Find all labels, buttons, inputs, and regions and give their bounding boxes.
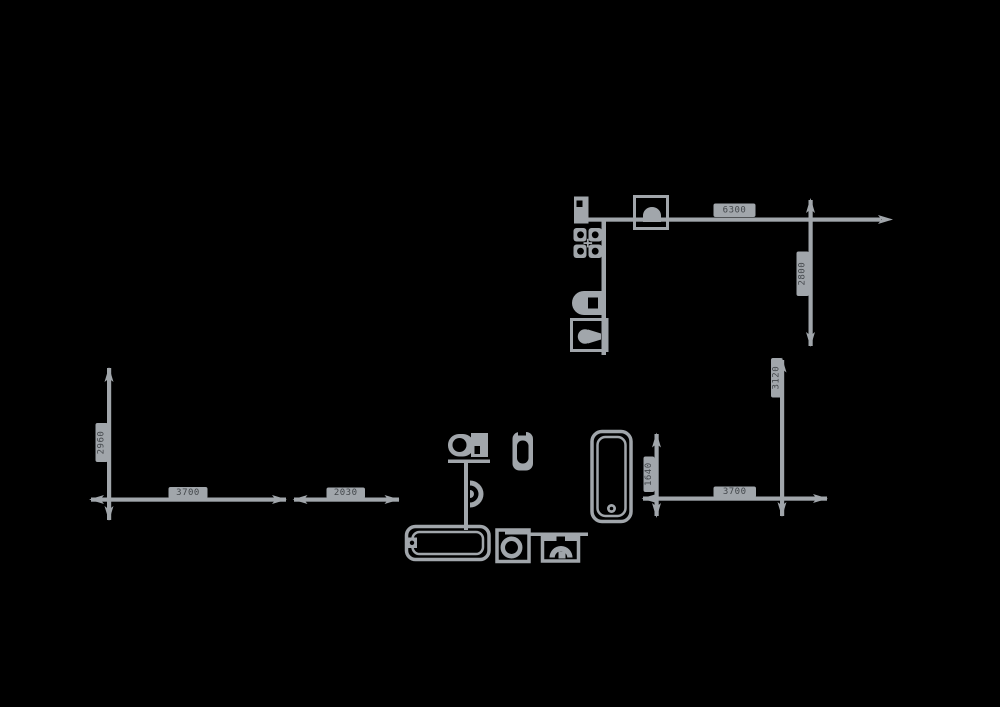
washing-machine-icon bbox=[497, 529, 529, 562]
wash-basin-icon bbox=[543, 535, 579, 562]
dimension-line bbox=[574, 218, 881, 222]
dimension-bathroom-inner-height[interactable]: 1640 bbox=[644, 433, 662, 519]
dimension-label: 2030 bbox=[334, 488, 358, 498]
toilet-icon bbox=[448, 433, 488, 457]
pedestal-sink-icon bbox=[470, 481, 484, 508]
dimension-label: 2800 bbox=[798, 262, 808, 286]
dimension-label: 3120 bbox=[772, 366, 782, 390]
floorplan-drawing: 6300 2800 3120 2960 bbox=[0, 0, 1000, 707]
counter-edge-line bbox=[602, 221, 607, 355]
dimension-line bbox=[655, 434, 659, 516]
partition-wall bbox=[448, 460, 490, 531]
dimension-left-room-width[interactable]: 3700 bbox=[89, 487, 287, 504]
dimension-line bbox=[809, 200, 813, 346]
kitchen-sink-icon bbox=[635, 197, 668, 229]
bathroom-fixtures[interactable] bbox=[407, 432, 632, 562]
bathtub-vertical-icon bbox=[592, 432, 631, 522]
dimension-right-lower-height[interactable]: 3120 bbox=[771, 358, 787, 518]
bidet-icon bbox=[513, 432, 534, 471]
dimension-label: 3700 bbox=[176, 488, 200, 498]
dimension-label: 3700 bbox=[723, 487, 747, 497]
wall-segment bbox=[528, 533, 588, 537]
dimension-label: 6300 bbox=[723, 206, 747, 216]
gas-hob-icon bbox=[574, 228, 603, 258]
boiler-icon bbox=[572, 291, 603, 315]
bathtub-horizontal-icon bbox=[407, 527, 490, 560]
dimension-label: 1640 bbox=[644, 462, 654, 486]
floorplan-canvas: 6300 2800 3120 2960 bbox=[0, 0, 1000, 707]
dimension-left-room-width-2[interactable]: 2030 bbox=[293, 488, 400, 505]
dimension-label: 2960 bbox=[97, 431, 107, 455]
base-cabinet-icon bbox=[574, 197, 589, 224]
dimension-kitchen-wall-width[interactable]: 6300 bbox=[574, 204, 893, 225]
dimension-bathroom-width[interactable]: 3700 bbox=[642, 487, 829, 504]
